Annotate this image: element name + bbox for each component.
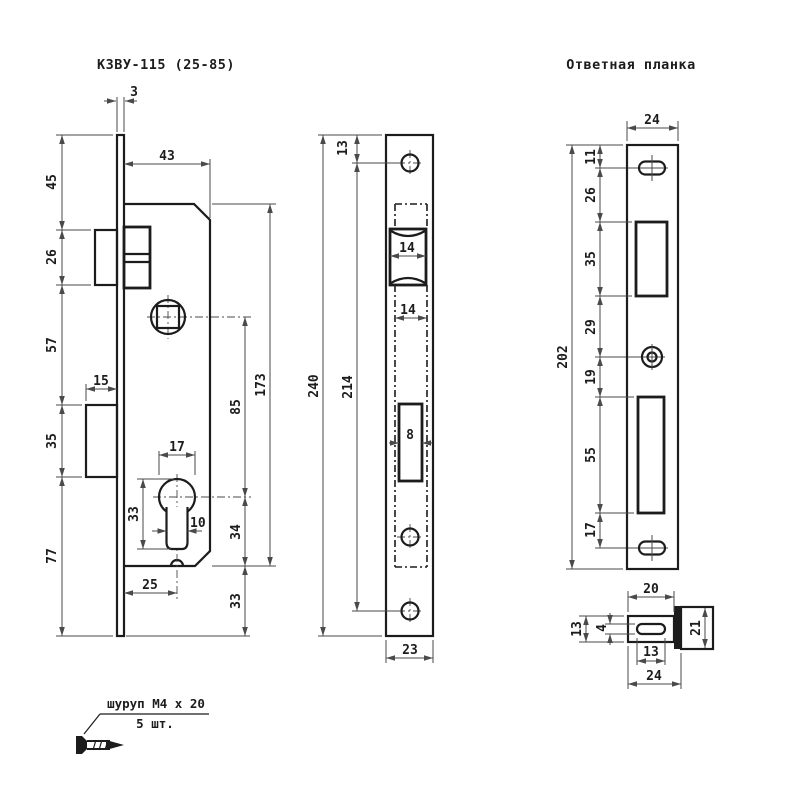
lock-title: КЗВУ-115 (25-85) [97,57,235,73]
dim-body-height: 173 [254,373,269,396]
dim-top-to-screw: 13 [336,140,351,156]
dim-cylinder-height: 33 [127,506,142,522]
dim-section-slot-width: 4 [595,624,610,632]
cylinder-hole-neck [167,507,188,549]
dim-cylinder-neck: 10 [190,516,206,531]
dim-body-width: 14 [400,303,416,318]
dim-bolt-to-bottom: 77 [45,548,60,564]
dim-faceplate-length: 240 [307,374,322,398]
dim-latch-height: 26 [45,249,60,265]
latch-opening [390,229,426,285]
dim-top-to-latch: 45 [45,174,60,190]
dim-section-flat-width: 20 [643,582,659,597]
dim-body-to-plate-bottom: 33 [229,593,244,609]
dim-latch-to-bolt: 57 [45,337,60,353]
dim-strike-width: 24 [644,113,660,128]
dim-bolt-to-hole: 17 [584,522,599,538]
strike-plate-title: Ответная планка [566,57,695,73]
dim-latch-opening-height: 35 [584,251,599,267]
dim-top-to-hole: 11 [584,149,599,165]
dim-bolt-protrusion: 15 [93,374,109,389]
dim-cyl-to-body-bottom: 34 [229,524,244,540]
dim-cylinder-diameter: 17 [169,440,185,455]
dim-screw-to-bolt: 19 [584,369,599,385]
dim-section-flat-height: 13 [570,621,585,637]
dim-faceplate-width: 23 [402,643,418,658]
dim-latch-width: 14 [399,241,415,256]
dim-bolt-slot-width: 8 [406,428,414,443]
dim-latch-to-screw: 29 [584,319,599,335]
dim-bolt-height: 35 [45,433,60,449]
dim-section-lip-depth: 21 [689,620,704,636]
dim-screw-centers: 214 [341,375,356,399]
dim-section-total-width: 24 [646,669,662,684]
dim-hole-to-latch: 26 [584,187,599,203]
screw-quantity-text: 5 шт. [136,716,174,731]
paper-background [0,0,800,800]
dim-body-depth: 43 [159,149,175,164]
dim-backset: 25 [142,578,158,593]
dim-bolt-opening-height: 55 [584,447,599,463]
dim-section-slot-length: 13 [643,645,659,660]
dim-strike-length: 202 [556,345,571,368]
screw-note-text: шуруп М4 х 20 [107,696,205,711]
dim-centers-distance: 85 [229,399,244,415]
dim-faceplate-thickness: 3 [130,85,138,100]
lock-technical-drawing: КЗВУ-115 (25-85) Ответная планка 3 [0,0,800,800]
